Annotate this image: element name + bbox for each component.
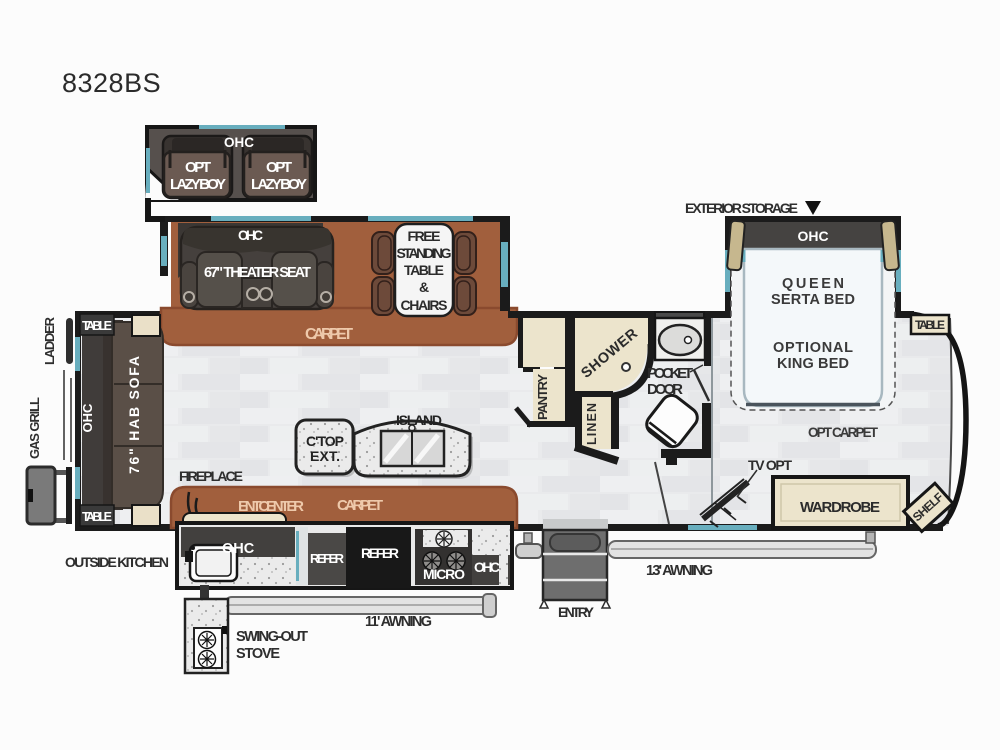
svg-text:11' AWNING: 11' AWNING [365,614,432,630]
svg-text:LAZY BOY: LAZY BOY [251,176,307,193]
svg-text:SWING-OUT: SWING-OUT [236,629,308,645]
svg-text:MICRO: MICRO [423,566,465,582]
svg-text:WARDROBE: WARDROBE [800,499,880,516]
svg-text:OHC: OHC [222,541,255,557]
svg-text:DOOR: DOOR [647,381,683,398]
svg-text:PANTRY: PANTRY [535,374,550,420]
svg-text:CARPET: CARPET [337,497,383,514]
svg-text:OHC: OHC [238,228,263,243]
svg-text:OPT CARPET: OPT CARPET [808,425,879,440]
svg-text:GAS GRILL: GAS GRILL [27,397,42,459]
svg-text:ENTRY: ENTRY [558,604,595,620]
svg-text:POCKET: POCKET [647,365,693,382]
svg-text:C'TOP: C'TOP [306,433,344,449]
svg-text:OHC: OHC [797,228,828,244]
svg-text:&: & [419,279,429,295]
svg-text:OUTSIDE KITCHEN: OUTSIDE KITCHEN [65,554,169,570]
svg-text:SERTA BED: SERTA BED [771,292,855,308]
svg-text:CHAIRS: CHAIRS [401,297,448,313]
svg-text:ISLAND: ISLAND [396,412,442,428]
svg-text:TABLE: TABLE [915,318,945,332]
svg-text:EXT.: EXT. [310,448,340,464]
svg-text:STANDING: STANDING [397,245,452,261]
svg-text:KING BED: KING BED [777,356,849,372]
svg-text:REFER: REFER [361,545,399,561]
svg-text:13' AWNING: 13' AWNING [646,563,713,579]
svg-text:STOVE: STOVE [236,646,280,662]
svg-text:REFER: REFER [310,551,345,566]
svg-text:LINEN: LINEN [585,403,599,445]
svg-text:OHC: OHC [474,559,500,575]
svg-text:OPTIONAL: OPTIONAL [773,340,853,356]
svg-text:FIREPLACE: FIREPLACE [179,468,243,484]
svg-text:LAZY BOY: LAZY BOY [170,176,226,193]
svg-text:8328BS: 8328BS [62,68,161,98]
svg-text:EXTERIOR STORAGE: EXTERIOR STORAGE [685,200,798,216]
svg-text:TABLE: TABLE [404,262,444,278]
svg-text:OHC: OHC [224,135,254,150]
svg-text:OHC: OHC [80,403,95,433]
svg-text:TABLE: TABLE [82,510,112,524]
svg-text:OPT: OPT [185,159,211,176]
svg-text:CARPET: CARPET [305,326,353,343]
svg-text:QUEEN: QUEEN [782,276,844,292]
svg-text:TV OPT: TV OPT [748,457,792,473]
svg-text:67" THEATER SEAT: 67" THEATER SEAT [204,265,311,281]
svg-text:FREE: FREE [408,228,441,244]
svg-text:TABLE: TABLE [82,319,112,333]
svg-text:OPT: OPT [266,159,292,176]
svg-text:LADDER: LADDER [42,316,57,365]
